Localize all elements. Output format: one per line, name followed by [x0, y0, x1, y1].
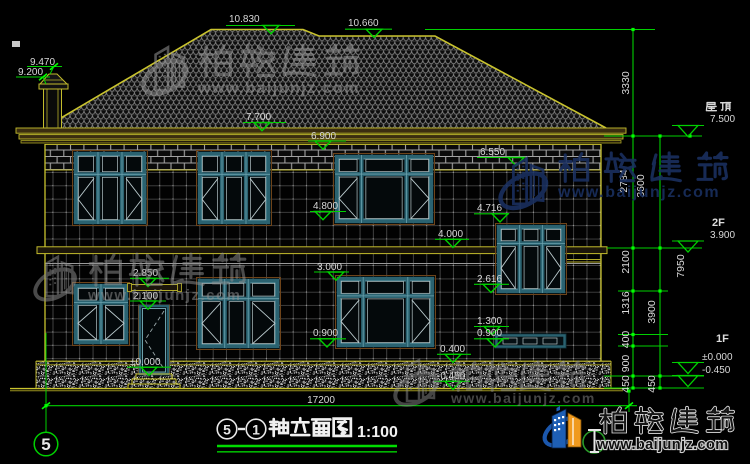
svg-text:2.616: 2.616 [477, 274, 502, 285]
svg-text:www.baijunjz.com: www.baijunjz.com [87, 287, 241, 304]
svg-text:0.900: 0.900 [477, 328, 502, 339]
svg-text:1: 1 [252, 422, 260, 438]
svg-text:5: 5 [223, 422, 231, 438]
svg-text:17200: 17200 [307, 395, 335, 406]
svg-text:3900: 3900 [646, 300, 658, 324]
svg-text:2100: 2100 [620, 250, 632, 274]
svg-text:±0.000: ±0.000 [130, 357, 161, 368]
svg-text:9.200: 9.200 [18, 67, 43, 78]
svg-text:3330: 3330 [620, 71, 632, 95]
svg-text:5: 5 [41, 435, 50, 454]
svg-text:1:100: 1:100 [357, 424, 398, 441]
svg-text:10.660: 10.660 [348, 18, 379, 29]
svg-text:www.baijunjz.com: www.baijunjz.com [197, 80, 360, 97]
svg-text:1F: 1F [716, 333, 729, 345]
svg-text:7.700: 7.700 [246, 112, 271, 123]
svg-text:www.baijunjz.com: www.baijunjz.com [596, 437, 729, 453]
svg-text:1.300: 1.300 [477, 316, 502, 327]
svg-text:1316: 1316 [620, 291, 632, 315]
svg-text:10.830: 10.830 [229, 14, 260, 25]
svg-text:900: 900 [620, 355, 632, 373]
svg-text:www.baijunjz.com: www.baijunjz.com [557, 184, 720, 201]
svg-text:400: 400 [620, 331, 632, 349]
svg-text:-0.450: -0.450 [702, 365, 731, 376]
svg-text:3.900: 3.900 [710, 230, 735, 241]
svg-text:7950: 7950 [675, 254, 687, 278]
svg-text:450: 450 [646, 375, 658, 393]
svg-text:www.baijunjz.com: www.baijunjz.com [450, 390, 596, 406]
svg-text:±0.000: ±0.000 [702, 352, 733, 363]
svg-text:2F: 2F [712, 217, 725, 229]
svg-text:4.800: 4.800 [313, 201, 338, 212]
svg-text:7.500: 7.500 [710, 114, 735, 125]
svg-text:6.550: 6.550 [480, 147, 505, 158]
svg-text:4.716: 4.716 [477, 203, 502, 214]
svg-text:0.900: 0.900 [313, 328, 338, 339]
svg-text:0.400: 0.400 [440, 344, 465, 355]
svg-text:4.000: 4.000 [438, 229, 463, 240]
